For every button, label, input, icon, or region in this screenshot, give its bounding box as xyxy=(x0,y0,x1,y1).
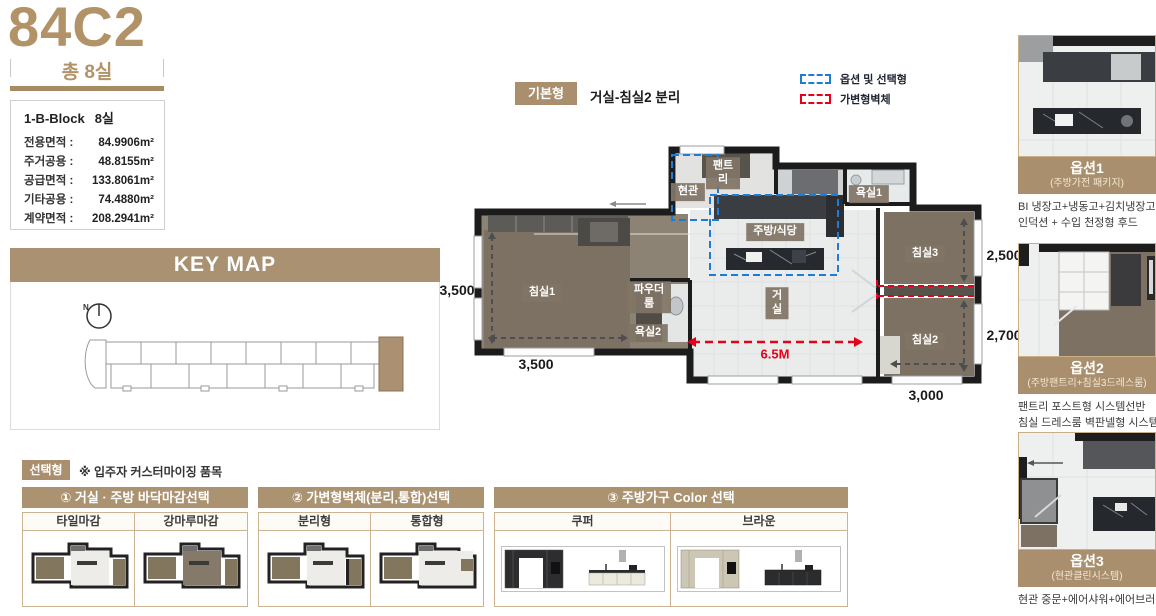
select-type-badge: 선택형 xyxy=(22,460,70,480)
option2-description: 팬트리 포스트형 시스템선반 침실 드레스룸 벽판넬형 시스템선반 xyxy=(1018,399,1156,431)
floorplan-thumb-wood xyxy=(139,537,243,601)
option1-description: BI 냉장고+냉동고+김치냉장고+키큰장 인덕션 + 수입 천정형 후드 xyxy=(1018,199,1156,231)
north-arrow-icon: N xyxy=(83,303,111,328)
room-label-bedroom3: 침실3 xyxy=(905,245,945,263)
area-value: 48.8155m² xyxy=(98,153,154,172)
area-row: 계약면적 : 208.2941m² xyxy=(24,210,154,229)
keymap-highlighted-unit xyxy=(379,337,403,391)
area-row: 기타공용 : 74.4880m² xyxy=(24,191,154,210)
area-label: 공급면적 : xyxy=(24,172,73,191)
panel1-thumbnails xyxy=(22,531,248,607)
kitchen-elevation-brown xyxy=(677,546,841,592)
area-label: 전용면적 : xyxy=(24,134,73,153)
option1-subtitle: (주방가전 패키지) xyxy=(1018,177,1156,190)
area-label: 계약면적 : xyxy=(24,210,73,229)
option3-desc-line: 현관 중문+에어샤워+에어브러쉬 xyxy=(1018,592,1156,608)
dimension-right-top: 2,500 xyxy=(986,247,1021,263)
room-label-living-room: 거실 xyxy=(766,287,789,319)
floor-plan: 현관 팬트리 욕실1 주방/식당 침실1 파우더룸 욕실2 거실 침실3 침실2… xyxy=(440,140,1000,410)
room-label-entrance: 현관 xyxy=(671,183,705,201)
room-label-bedroom2: 침실2 xyxy=(905,332,945,350)
panel3-col-brown: 브라운 xyxy=(671,512,848,531)
dimension-right-bottom: 2,700 xyxy=(986,327,1021,343)
area-row: 전용면적 : 84.9906m² xyxy=(24,134,154,153)
thumb-wall-combined xyxy=(371,531,484,607)
option1-desc-line: BI 냉장고+냉동고+김치냉장고+키큰장 xyxy=(1018,199,1156,215)
block-rooms: 8실 xyxy=(95,111,114,126)
area-value: 133.8061m² xyxy=(92,172,154,191)
legend-dashed-blue-swatch xyxy=(800,74,831,84)
select-note: ※ 입주자 커스터마이징 품목 xyxy=(79,463,222,480)
area-value: 84.9906m² xyxy=(98,134,154,153)
option2-name: 옵션2 xyxy=(1018,360,1156,377)
area-row: 주거공용 : 48.8155m² xyxy=(24,153,154,172)
dimension-left: 3,500 xyxy=(439,282,474,298)
legend-item-movable-wall: 가변형벽체 xyxy=(800,92,907,106)
thumb-tile-finish xyxy=(22,531,135,607)
option2-photo xyxy=(1018,243,1156,357)
block-heading: 1-B-Block8실 xyxy=(24,108,154,127)
option1-desc-line: 인덕션 + 수입 천정형 후드 xyxy=(1018,215,1156,231)
panel2-col-combined: 통합형 xyxy=(371,512,484,531)
option-card-1: 옵션1 (주방가전 패키지) BI 냉장고+냉동고+김치냉장고+키큰장 인덕션 … xyxy=(1018,35,1156,231)
panel3-col-copper: 쿠퍼 xyxy=(494,512,671,531)
floorplan-thumb-separated xyxy=(263,537,367,601)
room-label-kitchen-dining: 주방/식당 xyxy=(746,223,804,241)
dimension-bottom-left: 3,500 xyxy=(518,356,553,372)
option1-name: 옵션1 xyxy=(1018,160,1156,177)
keymap-title: KEY MAP xyxy=(10,248,440,282)
area-row: 공급면적 : 133.8061m² xyxy=(24,172,154,191)
legend-label: 가변형벽체 xyxy=(840,91,891,107)
svg-text:N: N xyxy=(83,303,89,312)
thumb-wood-finish xyxy=(135,531,248,607)
floorplan-thumb-tile xyxy=(27,537,131,601)
option2-caption: 옵션2 (주방팬트리+침실3드레스룸) xyxy=(1018,357,1156,394)
keymap-drawing: N xyxy=(11,282,439,428)
option3-photo xyxy=(1018,432,1156,550)
divider xyxy=(10,86,164,91)
option2-subtitle: (주방팬트리+침실3드레스룸) xyxy=(1018,377,1156,390)
legend-dashed-red-swatch xyxy=(800,94,831,104)
panel1-title: ① 거실 · 주방 바닥마감선택 xyxy=(22,487,248,508)
option-card-3: 옵션3 (현관클린시스템) 현관 중문+에어샤워+에어브러쉬 xyxy=(1018,432,1156,608)
area-value: 208.2941m² xyxy=(92,210,154,229)
option2-desc-line: 팬트리 포스트형 시스템선반 xyxy=(1018,399,1156,415)
option-card-2: 옵션2 (주방팬트리+침실3드레스룸) 팬트리 포스트형 시스템선반 침실 드레… xyxy=(1018,243,1156,431)
dimension-bottom-right: 3,000 xyxy=(908,387,943,403)
thumb-kitchen-brown xyxy=(671,531,848,607)
option2-desc-line: 침실 드레스룸 벽판넬형 시스템선반 xyxy=(1018,415,1156,431)
option3-subtitle: (현관클린시스템) xyxy=(1018,570,1156,583)
kitchen-elevation-copper xyxy=(501,546,665,592)
block-name: 1-B-Block xyxy=(24,111,85,126)
area-info-box: 1-B-Block8실 전용면적 : 84.9906m² 주거공용 : 48.8… xyxy=(10,100,165,230)
room-label-bedroom1: 침실1 xyxy=(522,284,562,302)
panel3-title: ③ 주방가구 Color 선택 xyxy=(494,487,848,508)
legend-item-option: 옵션 및 선택형 xyxy=(800,72,907,86)
plan-type-badge: 기본형 xyxy=(515,82,577,105)
thumb-kitchen-copper xyxy=(494,531,671,607)
thumb-wall-separated xyxy=(258,531,371,607)
panel1-columns: 타일마감 강마루마감 xyxy=(22,512,248,531)
option3-caption: 옵션3 (현관클린시스템) xyxy=(1018,550,1156,587)
panel3-columns: 쿠퍼 브라운 xyxy=(494,512,848,531)
room-label-bath1: 욕실1 xyxy=(849,185,889,203)
panel3-thumbnails xyxy=(494,531,848,607)
panel1-col-tile: 타일마감 xyxy=(22,512,135,531)
room-label-powder-room: 파우더룸 xyxy=(627,281,671,313)
panel2-col-separated: 분리형 xyxy=(258,512,371,531)
option1-caption: 옵션1 (주방가전 패키지) xyxy=(1018,157,1156,194)
room-label-bath2: 욕실2 xyxy=(628,324,668,342)
plan-type-description: 거실-침실2 분리 xyxy=(590,86,680,106)
option3-description: 현관 중문+에어샤워+에어브러쉬 xyxy=(1018,592,1156,608)
area-label: 기타공용 : xyxy=(24,191,73,210)
panel2-thumbnails xyxy=(258,531,484,607)
floorplan-thumb-combined xyxy=(375,537,479,601)
panel1-col-wood: 강마루마감 xyxy=(135,512,248,531)
area-label: 주거공용 : xyxy=(24,153,73,172)
dimension-living-width: 6.5M xyxy=(761,347,790,362)
legend-label: 옵션 및 선택형 xyxy=(840,71,907,87)
panel2-title: ② 가변형벽체(분리,통합)선택 xyxy=(258,487,484,508)
unit-total-rooms: 총 8실 xyxy=(10,57,164,84)
room-label-pantry: 팬트리 xyxy=(706,157,740,189)
area-value: 74.4880m² xyxy=(98,191,154,210)
keymap-panel: N xyxy=(10,282,440,430)
option1-photo xyxy=(1018,35,1156,157)
option3-name: 옵션3 xyxy=(1018,553,1156,570)
plan-legend: 옵션 및 선택형 가변형벽체 xyxy=(800,72,907,106)
unit-code-title: 84C2 xyxy=(8,0,146,59)
panel2-columns: 분리형 통합형 xyxy=(258,512,484,531)
